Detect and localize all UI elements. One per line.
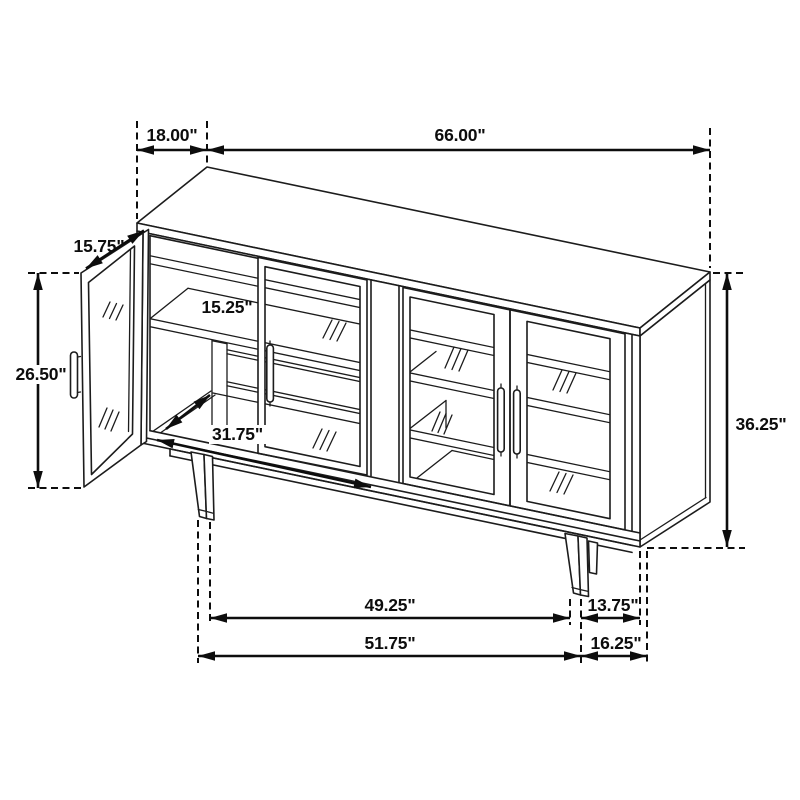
open-door-handle xyxy=(71,352,78,398)
sideboard-dimension-drawing: 18.00" 66.00" 15.75" 26.50" 36.25" 15.25… xyxy=(0,0,800,800)
dim-label-door-height: 26.50" xyxy=(16,364,67,384)
cabinet-case xyxy=(137,167,710,547)
dimension-overall-height: 36.25" xyxy=(727,273,786,547)
door-4-handle xyxy=(514,390,521,454)
dim-label-front-leg-span: 49.25" xyxy=(365,595,416,615)
dimension-outer-leg-span: 51.75" xyxy=(198,633,581,656)
dimension-right-leg-inset: 13.75" xyxy=(581,595,640,618)
dimension-door-height: 26.50" xyxy=(15,273,67,488)
dim-label-overall-height: 36.25" xyxy=(736,414,787,434)
dimension-side-leg-inset: 16.25" xyxy=(581,633,647,656)
dimension-diagram-canvas: 18.00" 66.00" 15.75" 26.50" 36.25" 15.25… xyxy=(0,0,800,800)
door-3-handle xyxy=(498,388,505,452)
dimension-top-depth: 18.00" xyxy=(137,125,207,150)
open-door xyxy=(71,230,149,488)
dim-label-top-depth: 18.00" xyxy=(147,125,198,145)
dimension-top-width: 66.00" xyxy=(207,125,710,150)
dim-label-shelf-depth: 15.25" xyxy=(202,297,253,317)
door-2-handle xyxy=(267,345,274,402)
dim-label-top-width: 66.00" xyxy=(435,125,486,145)
dim-label-outer-leg-span: 51.75" xyxy=(365,633,416,653)
back-right-leg xyxy=(589,541,598,574)
front-right-leg-side xyxy=(578,536,589,597)
dim-label-side-leg-inset: 16.25" xyxy=(591,633,642,653)
dimension-front-leg-span: 49.25" xyxy=(210,595,570,618)
dim-label-door-width: 15.75" xyxy=(74,236,125,256)
dim-label-right-leg-inset: 13.75" xyxy=(588,595,639,615)
dim-label-interior-width: 31.75" xyxy=(212,424,263,444)
front-left-leg-side xyxy=(204,455,214,521)
